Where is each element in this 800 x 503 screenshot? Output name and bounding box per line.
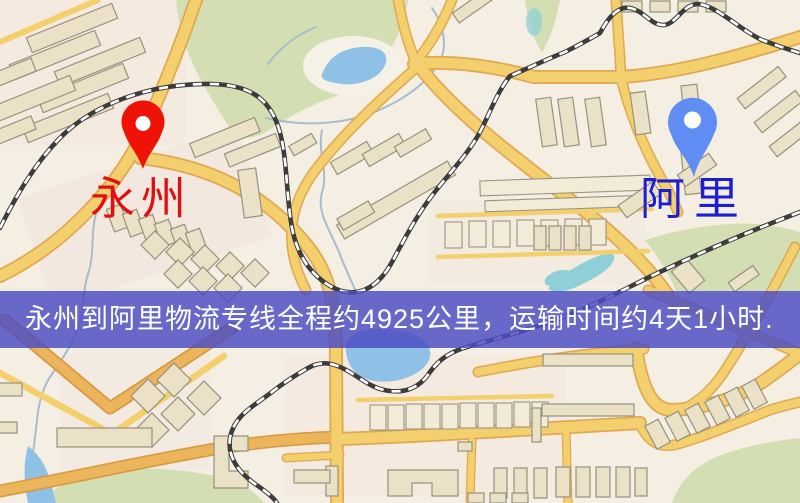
route-info-banner: 永州到阿里物流专线全程约4925公里，运输时间约4天1小时. (0, 291, 800, 348)
map-image (0, 0, 800, 503)
route-info-text: 永州到阿里物流专线全程约4925公里，运输时间约4天1小时. (0, 291, 800, 348)
destination-label: 阿里 (640, 177, 748, 222)
origin-label: 永州 (90, 177, 192, 222)
map-screenshot: 永州 阿里 永州到阿里物流专线全程约4925公里，运输时间约4天1小时. (0, 0, 800, 503)
